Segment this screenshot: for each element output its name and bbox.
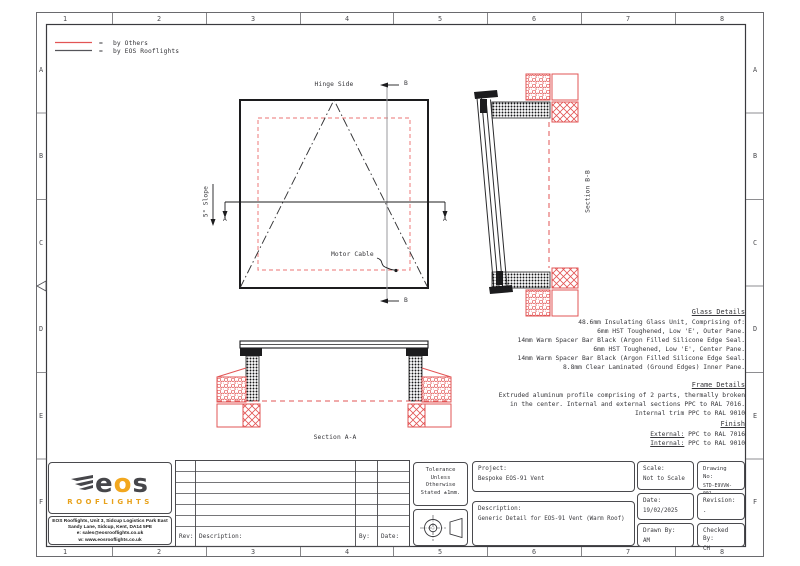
drawing-no-box: Drawing No: STD-E9VVW-001 — [697, 461, 745, 490]
glass-details-title: Glass Details — [440, 308, 745, 317]
legend-eq: = — [99, 47, 103, 56]
grid-row-label: A — [36, 65, 46, 75]
description-box: Description: Generic Detail for EOS-91 V… — [472, 501, 635, 546]
glass-details-line: 8.8mm Clear Laminated (Ground Edges) Inn… — [440, 363, 745, 372]
tolerance-note: Tolerance Unless Otherwise Stated ±1mm. — [413, 462, 468, 506]
drawing-sheet: { "colors": { "by_others_red": "#e25555"… — [0, 0, 800, 566]
glass-details-note: Glass Details 48.6mm Insulating Glass Un… — [440, 308, 745, 372]
section-aa-label: Section A-A — [285, 433, 385, 442]
glass-details-line: 14mm Warm Spacer Bar Black (Argon Filled… — [440, 354, 745, 363]
section-bb-view — [474, 74, 578, 316]
grid-row-label: F — [750, 497, 760, 507]
grid-column-label: 8 — [717, 14, 727, 24]
project-label: Project: — [478, 465, 629, 473]
scale-box: Scale: Not to Scale — [637, 461, 694, 490]
third-angle-projection-icon — [416, 512, 466, 544]
grid-column-label: 4 — [342, 547, 352, 557]
motor-cable-label: Motor Cable — [331, 250, 374, 259]
revision-box: Revision: . — [697, 493, 745, 520]
finish-value: PPC to RAL 9010 — [684, 440, 745, 447]
finish-note: Finish External: PPC to RAL 7016 Interna… — [440, 420, 745, 448]
finish-value: PPC to RAL 7016 — [684, 431, 745, 438]
company-address: EOS Rooflights, Unit 3, Sidcup Logistics… — [48, 516, 172, 545]
grid-row-label: D — [750, 324, 760, 334]
grid-column-label: 3 — [248, 14, 258, 24]
grid-row-label: E — [750, 411, 760, 421]
section-a-marker: A — [440, 215, 450, 224]
glass-details-line: 48.6mm Insulating Glass Unit, Comprising… — [440, 318, 745, 327]
rev-column-header: Rev: — [179, 533, 193, 541]
date-value: 19/02/2025 — [643, 507, 688, 515]
grid-column-label: 2 — [154, 547, 164, 557]
grid-column-label: 3 — [248, 547, 258, 557]
grid-column-label: 1 — [60, 14, 70, 24]
section-aa-view — [217, 341, 451, 427]
glass-details-line: 6mm HST Toughened, Low 'E', Outer Pane. — [440, 327, 745, 336]
frame-details-title: Frame Details — [440, 381, 745, 390]
by-column-header: By: — [359, 533, 370, 541]
frame-details-line: Internal trim PPC to RAL 9010 — [440, 409, 745, 418]
grid-column-label: 7 — [623, 14, 633, 24]
description-column-header: Description: — [199, 533, 242, 541]
project-box: Project: Bespoke EOS-91 Vent — [472, 461, 635, 492]
section-b-marker: B — [401, 296, 411, 305]
logo-letter: s — [133, 469, 149, 499]
tolerance-line: Tolerance — [414, 467, 467, 475]
finish-key: External: — [650, 431, 684, 438]
scale-label: Scale: — [643, 465, 688, 473]
drawing-no-label: Drawing No: — [703, 465, 739, 481]
tolerance-line: Unless — [414, 475, 467, 483]
tolerance-line: Otherwise — [414, 482, 467, 490]
frame-details-line: Extruded aluminum profile comprising of … — [440, 391, 745, 400]
grid-row-label: B — [750, 151, 760, 161]
finish-title: Finish — [440, 420, 745, 429]
address-line: w: www.eosrooflights.co.uk — [49, 538, 171, 544]
revision-label: Revision: — [703, 497, 739, 505]
section-bb-label: Section B-B — [584, 155, 593, 229]
description-value: Generic Detail for EOS-91 Vent (Warm Roo… — [478, 515, 629, 523]
checked-by-box: Checked By: CH — [697, 523, 745, 547]
logo-letter: e — [95, 469, 114, 499]
company-logo: eos ROOFLIGHTS — [48, 462, 172, 514]
grid-column-label: 2 — [154, 14, 164, 24]
project-value: Bespoke EOS-91 Vent — [478, 475, 629, 483]
date-column-header: Date: — [381, 533, 399, 541]
legend-swatches — [55, 43, 92, 51]
plan-view — [211, 83, 448, 304]
glass-details-line: 6mm HST Toughened, Low 'E', Center Pane. — [440, 345, 745, 354]
logo-wordmark: eos — [95, 471, 149, 497]
datum-triangle-icon — [37, 281, 46, 291]
scale-value: Not to Scale — [643, 475, 688, 483]
legend-item-by-eos: by EOS Rooflights — [113, 47, 179, 56]
hinge-side-label: Hinge Side — [289, 80, 379, 89]
drawn-by-box: Drawn By: AM — [637, 523, 694, 547]
logo-subtitle: ROOFLIGHTS — [67, 498, 153, 506]
grid-column-label: 5 — [435, 547, 445, 557]
projection-symbol-box — [413, 509, 468, 546]
grid-row-label: C — [750, 238, 760, 248]
frame-details-line: in the center. Internal and external sec… — [440, 400, 745, 409]
revision-value: . — [703, 507, 739, 515]
section-b-marker: B — [401, 79, 411, 88]
grid-row-label: C — [36, 238, 46, 248]
grid-row-label: F — [36, 497, 46, 507]
checked-by-label: Checked By: — [703, 527, 739, 543]
drawn-by-label: Drawn By: — [643, 527, 688, 535]
grid-column-label: 7 — [623, 547, 633, 557]
description-label: Description: — [478, 505, 629, 513]
frame-details-note: Frame Details Extruded aluminum profile … — [440, 381, 745, 418]
section-a-marker: A — [220, 215, 230, 224]
grid-column-label: 5 — [435, 14, 445, 24]
grid-column-label: 6 — [529, 547, 539, 557]
grid-column-label: 6 — [529, 14, 539, 24]
finish-key: Internal: — [650, 440, 684, 447]
grid-row-label: A — [750, 65, 760, 75]
glass-details-line: 14mm Warm Spacer Bar Black (Argon Filled… — [440, 336, 745, 345]
drawn-by-value: AM — [643, 537, 688, 545]
finish-line: External: PPC to RAL 7016 — [440, 430, 745, 439]
grid-column-label: 4 — [342, 14, 352, 24]
grid-column-label: 1 — [60, 547, 70, 557]
checked-by-value: CH — [703, 545, 739, 553]
grid-row-label: E — [36, 411, 46, 421]
grid-row-label: B — [36, 151, 46, 161]
tolerance-line: Stated ±1mm. — [414, 490, 467, 498]
logo-letter: o — [114, 469, 133, 499]
date-label: Date: — [643, 497, 688, 505]
date-box: Date: 19/02/2025 — [637, 493, 694, 520]
wing-icon — [71, 475, 95, 493]
grid-row-label: D — [36, 324, 46, 334]
finish-line: Internal: PPC to RAL 9010 — [440, 439, 745, 448]
slope-label: 5° Slope — [202, 168, 211, 236]
